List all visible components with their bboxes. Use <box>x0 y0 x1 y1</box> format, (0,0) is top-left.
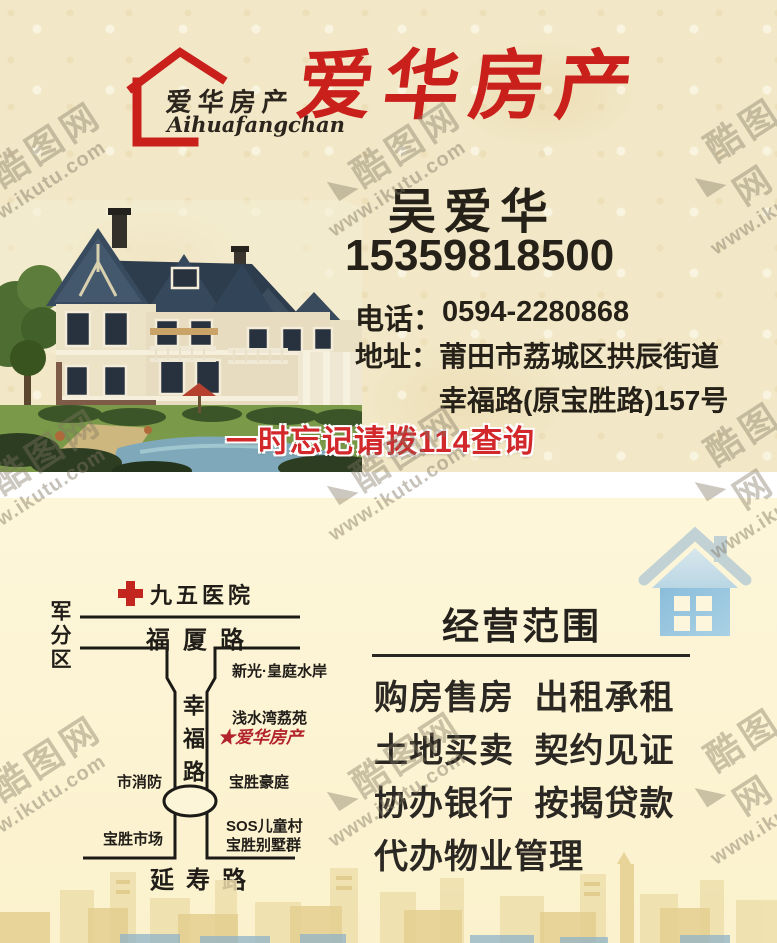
city-skyline <box>0 850 777 943</box>
hospital-cross-icon <box>118 581 143 606</box>
address-line-1: 莆田市荔城区拱辰街道 <box>439 335 728 375</box>
scope-divider-line <box>372 654 690 657</box>
hotline-note: 一时忘记请拨114查询 <box>226 416 535 461</box>
business-scope-heading: 经营范围 <box>442 596 602 650</box>
address-label: 地址： <box>355 335 439 419</box>
card-front: 爱华房产 Aihuafangchan 爱华房产 <box>0 0 777 472</box>
mobile-number: 15359818500 <box>345 231 614 281</box>
map-label-sos-village: SOS儿童村 <box>226 815 303 836</box>
map-label-fire-station: 市消防 <box>117 771 162 792</box>
map-label-fuxia-road: 福厦路 <box>146 620 257 655</box>
map-label-xinguang: 新光·皇庭水岸 <box>232 660 327 681</box>
map-label-hospital: 九五医院 <box>150 578 254 610</box>
address-line-2: 幸福路(原宝胜路)157号 <box>439 379 728 419</box>
map-label-military-district: 军分区 <box>44 600 74 672</box>
phone-row: 电话： 0594-2280868 <box>355 296 629 338</box>
blue-house-icon <box>638 518 753 640</box>
phone-number: 0594-2280868 <box>442 296 629 338</box>
map-label-baosheng-market: 宝胜市场 <box>103 828 163 849</box>
card-back: 九五医院 军分区 福厦路 新光·皇庭水岸 幸福路 浅水湾荔苑 ★爱华房产 市消防… <box>0 498 777 943</box>
address-lines: 莆田市荔城区拱辰街道 幸福路(原宝胜路)157号 <box>439 335 728 419</box>
business-item: 协办银行 按揭贷款 <box>374 776 674 825</box>
map-label-aihua-office: ★爱华房产 <box>218 723 303 748</box>
business-item: 土地买卖 契约见证 <box>374 723 674 772</box>
map-label-baosheng-haoting: 宝胜豪庭 <box>229 771 289 792</box>
address-row: 地址： 莆田市荔城区拱辰街道 幸福路(原宝胜路)157号 <box>355 335 728 419</box>
phone-label: 电话： <box>355 296 442 338</box>
map-label-xingfu-road: 幸福路 <box>176 694 208 793</box>
card-divider-gap <box>0 472 777 498</box>
company-title: 爱华房产 <box>292 40 763 131</box>
business-card-design: 爱华房产 Aihuafangchan 爱华房产 <box>0 0 777 943</box>
business-item: 购房售房 出租承租 <box>374 670 674 719</box>
